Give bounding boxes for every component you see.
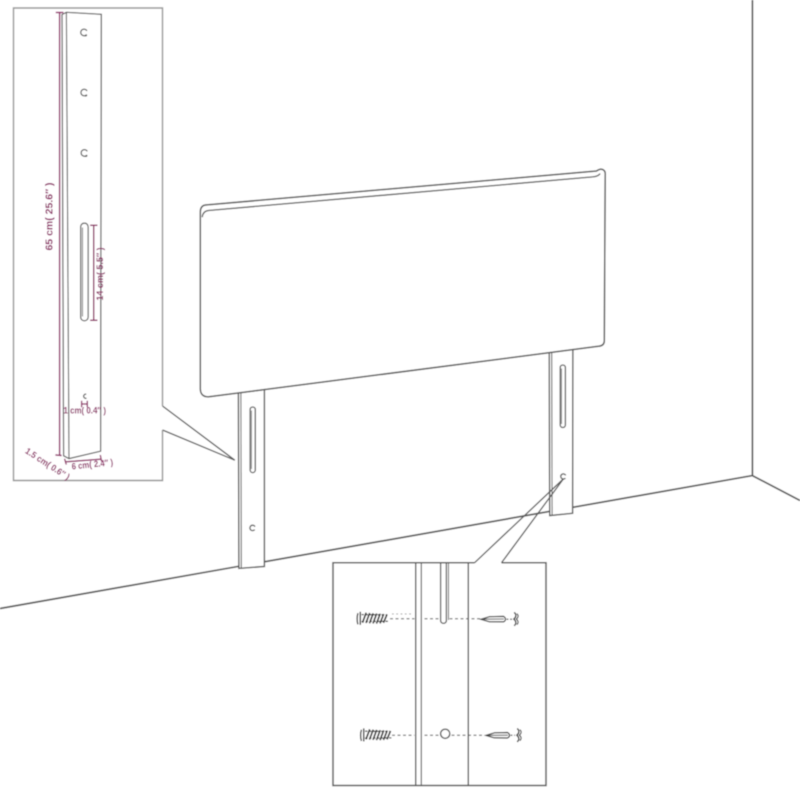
svg-text:1 cm( 0.4″ ): 1 cm( 0.4″ ) — [64, 406, 107, 416]
svg-text:65 cm( 25.6″ ): 65 cm( 25.6″ ) — [44, 182, 56, 250]
svg-text:14 cm( 5.5″ ): 14 cm( 5.5″ ) — [95, 247, 105, 300]
